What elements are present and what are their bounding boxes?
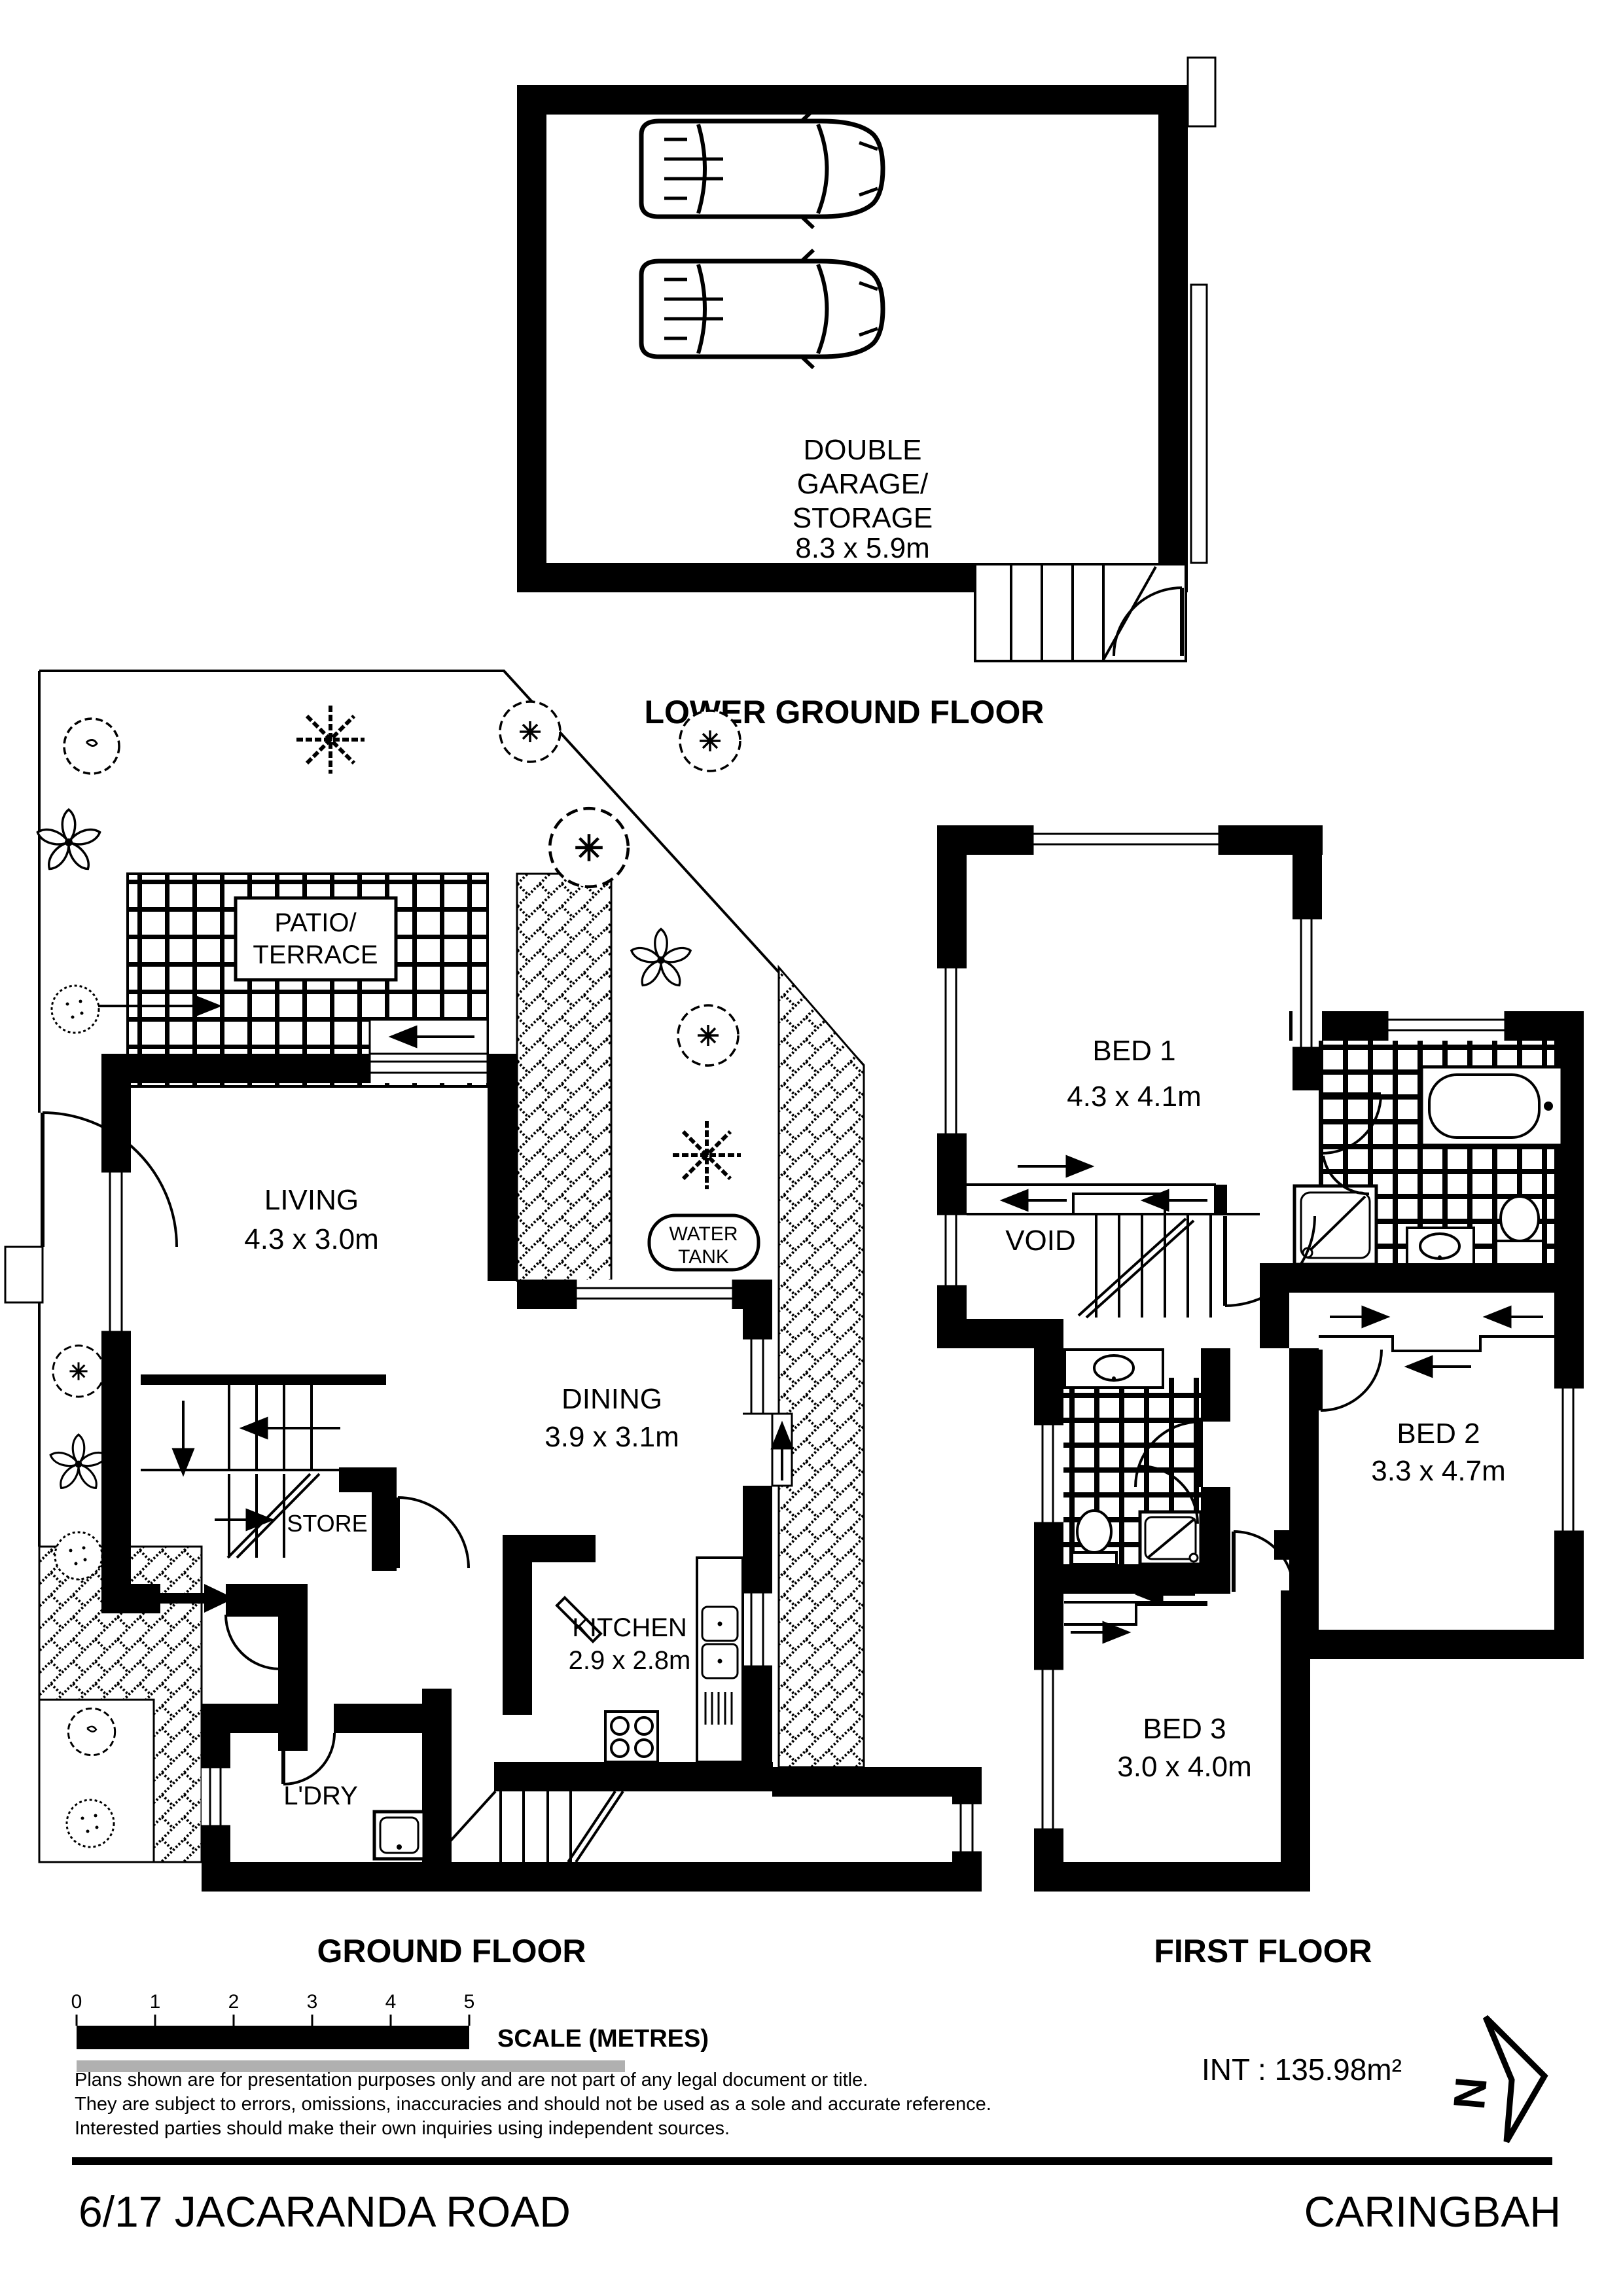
dining-dims: 3.9 x 3.1m: [544, 1421, 679, 1453]
laundry-label: L'DRY: [283, 1782, 358, 1810]
kitchen-label: KITCHEN: [572, 1613, 687, 1642]
bush-icon: [68, 1708, 115, 1755]
bush-icon: [64, 719, 119, 774]
scale-bar-rule: [77, 2026, 469, 2049]
living-label: LIVING: [264, 1184, 359, 1216]
tree-icon: [550, 808, 628, 887]
patio-label: PATIO/ TERRACE: [236, 898, 396, 980]
window: [1293, 918, 1322, 1048]
disclaimer-line2: They are subject to errors, omissions, i…: [75, 2094, 991, 2115]
scale-tick-2: 2: [228, 1991, 240, 2013]
garage-name-line2: GARAGE/: [797, 468, 929, 500]
void-label: VOID: [1005, 1225, 1076, 1257]
water-tank: WATER TANK: [649, 1215, 758, 1270]
scale-tick-3: 3: [307, 1991, 318, 2013]
garage-name-line3: STORAGE: [793, 502, 933, 534]
scale-tick-5: 5: [464, 1991, 475, 2013]
ensuite-basin: [1065, 1350, 1163, 1388]
scale-tick-0: 0: [71, 1991, 82, 2013]
side-path-paving: [517, 874, 611, 1281]
window: [1033, 825, 1219, 855]
bush-icon: [500, 702, 560, 762]
ensuite-shower: [1140, 1512, 1201, 1564]
window: [1554, 1388, 1584, 1532]
bush-icon: [53, 1346, 104, 1397]
window: [937, 1214, 967, 1286]
bush-icon: [55, 1532, 102, 1579]
garage-stairs: [975, 564, 1186, 661]
garage-name-line1: DOUBLE: [804, 434, 922, 466]
ground-floor-title: GROUND FLOOR: [317, 1933, 586, 1969]
footer-suburb: CARINGBAH: [1304, 2187, 1561, 2236]
garage-dims: 8.3 x 5.9m: [795, 532, 929, 564]
bath-tub: [1421, 1067, 1562, 1145]
bed1-dims: 4.3 x 4.1m: [1067, 1081, 1201, 1113]
window: [743, 1338, 772, 1414]
disclaimer-line1: Plans shown are for presentation purpose…: [75, 2070, 868, 2090]
disclaimer-line3: Interested parties should make their own…: [75, 2118, 730, 2139]
window: [1034, 1424, 1063, 1523]
window: [576, 1280, 733, 1309]
stove-cooktop: [605, 1712, 658, 1762]
scale-tick-4: 4: [385, 1991, 397, 2013]
bed2-label: BED 2: [1397, 1418, 1480, 1450]
sliding-door-step: [370, 1020, 488, 1054]
bush-icon: [678, 1005, 738, 1066]
floor-plan-document: DOUBLE GARAGE/ STORAGE 8.3 x 5.9m LOWER …: [0, 0, 1623, 2296]
vanity-basin: [1407, 1228, 1474, 1265]
bed1-label: BED 1: [1092, 1035, 1175, 1067]
bush-icon: [680, 711, 740, 771]
toilet: [1496, 1196, 1543, 1265]
window: [952, 1803, 982, 1852]
ensuite: [1063, 1350, 1201, 1564]
window: [202, 1767, 230, 1826]
water-tank-line2: TANK: [678, 1246, 729, 1268]
bed3-label: BED 3: [1143, 1713, 1226, 1745]
bush-icon: [52, 986, 99, 1033]
rear-door: [772, 1414, 792, 1486]
car-icon: [641, 250, 883, 368]
north-letter: N: [1444, 2075, 1496, 2111]
bed3-dims: 3.0 x 4.0m: [1117, 1751, 1251, 1783]
bathroom: [1294, 1041, 1562, 1265]
driveway-paving: [779, 967, 864, 1767]
patio-name-line2: TERRACE: [253, 941, 378, 969]
car-icon: [641, 110, 883, 228]
window: [1387, 1011, 1505, 1041]
window: [1034, 1669, 1063, 1829]
footer-address: 6/17 JACARANDA ROAD: [79, 2187, 571, 2236]
water-tank-line1: WATER: [669, 1223, 738, 1245]
laundry-tub: [374, 1812, 424, 1859]
window: [937, 967, 967, 1134]
window: [101, 1172, 131, 1332]
kitchen-dims: 2.9 x 2.8m: [569, 1646, 691, 1675]
internal-area-value: INT : 135.98m²: [1202, 2053, 1402, 2087]
store-label: STORE: [287, 1510, 367, 1537]
bed2-dims: 3.3 x 4.7m: [1371, 1455, 1505, 1487]
garage-label: DOUBLE GARAGE/ STORAGE 8.3 x 5.9m: [793, 434, 933, 564]
window: [370, 1054, 488, 1083]
living-dims: 4.3 x 3.0m: [244, 1223, 378, 1255]
dining-label: DINING: [562, 1383, 662, 1415]
patio-name-line1: PATIO/: [274, 908, 357, 937]
scale-bar-label: SCALE (METRES): [497, 2025, 709, 2053]
first-floor-title: FIRST FLOOR: [1154, 1933, 1372, 1969]
window: [743, 1592, 772, 1666]
bush-icon: [67, 1800, 114, 1847]
scale-tick-1: 1: [150, 1991, 161, 2013]
